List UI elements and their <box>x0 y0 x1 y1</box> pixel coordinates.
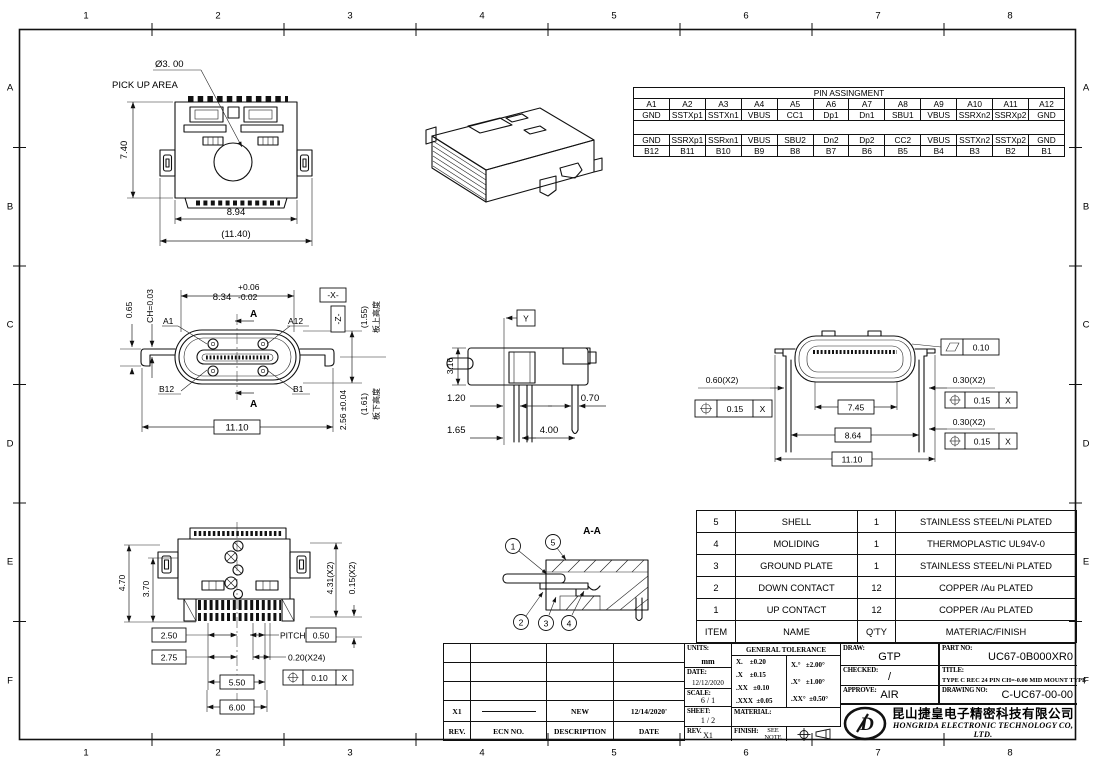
zone-col-8: 8 <box>1007 11 1012 22</box>
pos-tol-2: 0.15 <box>974 396 991 406</box>
datum-x-label: -X- <box>327 290 339 300</box>
balloon-3: 3 <box>544 619 549 629</box>
bom-item: 3 <box>697 555 736 577</box>
pos-datum-1: X <box>760 404 766 414</box>
draw-value: GTP <box>841 651 938 663</box>
zone-col-8b: 8 <box>1007 748 1012 759</box>
section-view: A-A 1 5 2 3 4 <box>503 526 648 631</box>
label-b12: B12 <box>159 384 174 394</box>
zone-col-1: 1 <box>83 11 88 22</box>
rear-view: 0.10 0.60(X2) 0.15 X 7.45 8.64 11.10 0.3… <box>695 331 1017 466</box>
pin-col: A9 <box>921 99 957 110</box>
bom-material: COPPER /Au PLATED <box>896 599 1077 621</box>
datum-z-label: -Z- <box>333 313 343 324</box>
section-mark-bottom: A <box>250 399 257 410</box>
date-label: DATE: <box>687 669 707 676</box>
finish-value: SEE NOTE <box>760 727 786 741</box>
zone-row-a: A <box>7 83 13 94</box>
dim-3-70: 3.70 <box>141 580 151 597</box>
dim-7-40: 7.40 <box>119 141 130 160</box>
bom-header-item: ITEM <box>697 621 736 643</box>
pin-col: A11 <box>993 99 1029 110</box>
pin-signal: GND <box>634 135 670 146</box>
rev-header-date: DATE <box>614 722 685 741</box>
section-mark-top: A <box>250 309 257 320</box>
dim-0-30x2-b: 0.30(X2) <box>953 417 986 427</box>
pin-col: B1 <box>1028 146 1064 157</box>
dim-1-20: 1.20 <box>447 393 466 404</box>
pin-signal: Dp1 <box>813 110 849 121</box>
dim-3-16: 3.16 <box>445 357 455 374</box>
rev-header-ecn: ECN NO. <box>471 722 547 741</box>
scale-cell: SCALE: 6 / 1 <box>685 689 732 707</box>
zone-col-6b: 6 <box>743 748 748 759</box>
sheet-value: 1 / 2 <box>685 716 731 725</box>
dim-8-34-tol-minus: -0.02 <box>238 292 258 302</box>
rev-date: 12/14/2020' <box>614 701 685 722</box>
projection-symbols <box>786 727 841 741</box>
bom-item: 5 <box>697 511 736 533</box>
zone-col-4: 4 <box>479 11 484 22</box>
zone-row-c2: C <box>1083 320 1090 331</box>
pin-signal: VBUS <box>741 135 777 146</box>
rev-description: NEW <box>547 701 614 722</box>
pin-col: A4 <box>741 99 777 110</box>
pin-signal: SSTXn1 <box>705 110 741 121</box>
pos-datum-2: X <box>1005 396 1011 406</box>
material-cell: MATERIAL: <box>732 707 841 727</box>
bom-material: STAINLESS STEEL/Ni PLATED <box>896 511 1077 533</box>
rev-value: X1 <box>444 701 471 722</box>
pin-signal: CC1 <box>777 110 813 121</box>
rev-header-desc: DESCRIPTION <box>547 722 614 741</box>
pin-signal: CC2 <box>885 135 921 146</box>
dim-4-70: 4.70 <box>117 574 127 591</box>
dim-4-31x2: 4.31(X2) <box>325 562 335 595</box>
bom-header-name: NAME <box>736 621 858 643</box>
title-block: UNITS: mm DATE: 12/12/2020 SCALE: 6 / 1 … <box>684 643 1076 740</box>
units-label: UNITS: <box>687 645 709 652</box>
bom-name: UP CONTACT <box>736 599 858 621</box>
dim-2-56: 2.56 ±0.04 <box>338 390 348 430</box>
pin-col: B4 <box>921 146 957 157</box>
pitch-value: 0.50 <box>313 631 330 641</box>
rev-ecn-line <box>471 701 547 722</box>
zone-col-3: 3 <box>347 11 352 22</box>
pin-col: A12 <box>1028 99 1064 110</box>
balloon-2: 2 <box>519 618 524 628</box>
dim-5-50: 5.50 <box>229 678 246 688</box>
pin-col: B11 <box>669 146 705 157</box>
pin-col: A5 <box>777 99 813 110</box>
dim-ch: CH=0.03 <box>145 289 155 323</box>
zone-row-f: F <box>7 676 13 687</box>
zone-col-5: 5 <box>611 11 616 22</box>
pin-signal: VBUS <box>741 110 777 121</box>
top-view: 7.40 8.94 (11.40) Ø3. 00 PICK UP AREA <box>112 59 312 246</box>
bom-name: SHELL <box>736 511 858 533</box>
pin-col: A10 <box>957 99 993 110</box>
date-cell: DATE: 12/12/2020 <box>685 668 732 689</box>
rev-empty <box>444 663 471 682</box>
pos-datum-bottom: X <box>342 673 348 683</box>
zone-row-e2: E <box>1083 557 1089 568</box>
bom-name: DOWN CONTACT <box>736 577 858 599</box>
pin-col: B9 <box>741 146 777 157</box>
dim-11-10-rear: 11.10 <box>842 455 863 465</box>
rev-cell: REV. X1 <box>685 727 732 741</box>
pin-signal: VBUS <box>921 110 957 121</box>
pin-signal: SSTXp1 <box>669 110 705 121</box>
pin-col: A3 <box>705 99 741 110</box>
part-no-cell: PART NO: UC67-0B000XR0 <box>939 644 1077 666</box>
zone-row-b2: B <box>1083 202 1089 213</box>
zone-col-7b: 7 <box>875 748 880 759</box>
pin-table-title: PIN ASSINGMENT <box>634 88 1065 99</box>
pin-signal: SSRXp2 <box>993 110 1029 121</box>
zone-col-7: 7 <box>875 11 880 22</box>
bom-header-qty: Q'TY <box>858 621 896 643</box>
pin-signal: SSRxn1 <box>705 135 741 146</box>
company-name-en: HONGRIDA ELECTRONIC TECHNOLOGY CO, LTD. <box>889 721 1077 739</box>
dim-8-34-tol-plus: +0.06 <box>238 282 260 292</box>
target-symbol-icon <box>797 728 811 741</box>
pin-signal: Dp2 <box>849 135 885 146</box>
sheet-cell: SHEET: 1 / 2 <box>685 707 732 727</box>
bom-material: STAINLESS STEEL/Ni PLATED <box>896 555 1077 577</box>
dim-1-61: (1.61) <box>359 393 369 415</box>
dim-1-55: (1.55) <box>359 306 369 328</box>
company-logo-icon: D <box>841 705 889 742</box>
pin-signal: GND <box>1028 110 1064 121</box>
tol-l2: .X ±0.15 <box>736 671 786 679</box>
finish-label: FINISH: <box>734 728 758 735</box>
dim-0-20x24: 0.20(X24) <box>288 653 325 663</box>
revision-table: X1 NEW 12/14/2020' REV. ECN NO. DESCRIPT… <box>443 643 685 741</box>
bom-qty: 1 <box>858 511 896 533</box>
pos-tol-bottom: 0.10 <box>311 673 328 683</box>
pos-datum-3: X <box>1005 437 1011 447</box>
pin-signal: GND <box>1028 135 1064 146</box>
pin-signal: GND <box>634 110 670 121</box>
bom-qty: 12 <box>858 577 896 599</box>
zone-row-d: D <box>7 439 14 450</box>
drawing-sheet: 7.40 8.94 (11.40) Ø3. 00 PICK UP AREA <box>0 0 1096 767</box>
bom-item: 4 <box>697 533 736 555</box>
tolerance-angular: X.° ±2.00° .X° ±1.00° .XX° ±0.50° <box>786 656 841 707</box>
datum-y-label: Y <box>523 314 529 324</box>
company-name-cn: 昆山捷皇电子精密科技有限公司 <box>889 707 1077 721</box>
draw-cell: DRAW: GTP <box>841 644 939 666</box>
pin-col: B8 <box>777 146 813 157</box>
dim-8-34: 8.34 <box>213 292 232 303</box>
bom-table: 5SHELL1STAINLESS STEEL/Ni PLATED 4MOLIDI… <box>696 510 1077 643</box>
pin-assignment-table: PIN ASSINGMENT A1A2A3A4A5A6A7A8A9A10A11A… <box>633 87 1065 157</box>
zone-col-1b: 1 <box>83 748 88 759</box>
dim-11-40: (11.40) <box>221 229 250 240</box>
pin-signal: SSRXp1 <box>669 135 705 146</box>
dim-1-65: 1.65 <box>447 425 466 436</box>
flatness-value: 0.10 <box>973 343 990 353</box>
zone-row-b: B <box>7 202 13 213</box>
pin-col: A7 <box>849 99 885 110</box>
dim-0-15x2: 0.15(X2) <box>347 562 357 595</box>
finish-cell: FINISH: SEE NOTE <box>732 727 786 741</box>
zone-col-6: 6 <box>743 11 748 22</box>
pin-col: B7 <box>813 146 849 157</box>
pin-signal: VBUS <box>921 135 957 146</box>
dim-6-00: 6.00 <box>229 703 246 713</box>
bom-name: MOLIDING <box>736 533 858 555</box>
side-view: Y 3.16 1.20 0.70 1.65 4.00 <box>445 310 606 445</box>
pin-signal: SBU2 <box>777 135 813 146</box>
zone-col-2: 2 <box>215 11 220 22</box>
rev-empty <box>444 644 471 663</box>
isometric-view <box>426 108 602 202</box>
title-cell: TITLE: TYPE C REC 24 PIN CH=-0.00 MID MO… <box>939 666 1077 686</box>
balloon-1: 1 <box>511 542 516 552</box>
drawing-no-cell: DRAWING NO: C-UC67-00-00 <box>939 686 1077 704</box>
pin-signal: SBU1 <box>885 110 921 121</box>
zone-row-e: E <box>7 557 13 568</box>
company-names: 昆山捷皇电子精密科技有限公司 HONGRIDA ELECTRONIC TECHN… <box>889 707 1077 739</box>
zone-row-d2: D <box>1083 439 1090 450</box>
part-no-value: UC67-0B000XR0 <box>940 651 1073 663</box>
checked-cell: CHECKED: / <box>841 666 939 686</box>
sheet-label: SHEET: <box>687 708 710 715</box>
pin-col: B12 <box>634 146 670 157</box>
tolerance-linear: X. ±0.20 .X ±0.15 .XX ±0.10 .XXX ±0.05 <box>732 656 786 707</box>
tol-a3: .XX° ±0.50° <box>791 695 840 703</box>
tol-l4: .XXX ±0.05 <box>736 697 786 705</box>
dim-0-70: 0.70 <box>581 393 600 404</box>
units-value: mm <box>685 657 731 666</box>
pin-col: A6 <box>813 99 849 110</box>
rev-header-rev: REV. <box>444 722 471 741</box>
pin-col: B5 <box>885 146 921 157</box>
zone-col-5b: 5 <box>611 748 616 759</box>
dim-2-75: 2.75 <box>161 653 178 663</box>
tol-l1: X. ±0.20 <box>736 658 786 666</box>
note-above-board: 板上高度 <box>371 301 381 333</box>
zone-row-c: C <box>7 320 14 331</box>
pin-col: A8 <box>885 99 921 110</box>
bottom-view: 4.70 3.70 4.31(X2) 0.15(X2) 2.50 PITCH 0… <box>117 522 362 714</box>
pin-col: A2 <box>669 99 705 110</box>
pickup-dia-label: Ø3. 00 <box>155 59 184 70</box>
bom-material: THERMOPLASTIC UL94V-0 <box>896 533 1077 555</box>
pin-signal: Dn1 <box>849 110 885 121</box>
rev-empty <box>444 682 471 701</box>
bom-header-material: MATERIAC/FINISH <box>896 621 1077 643</box>
scale-value: 6 / 1 <box>685 696 731 705</box>
tolerance-title: GENERAL TOLERANCE <box>732 644 841 656</box>
label-a1: A1 <box>163 316 174 326</box>
title-value: TYPE C REC 24 PIN CH=-0.00 MID MOUNT TYP… <box>942 677 1086 684</box>
label-a12: A12 <box>288 316 303 326</box>
rev-value2: X1 <box>685 731 731 740</box>
tol-a2: .X° ±1.00° <box>791 678 840 686</box>
bom-qty: 1 <box>858 555 896 577</box>
company-block: D 昆山捷皇电子精密科技有限公司 HONGRIDA ELECTRONIC TEC… <box>841 704 1077 741</box>
pin-table-gap <box>634 121 1065 135</box>
pos-tol-1: 0.15 <box>727 404 744 414</box>
approve-value: AIR <box>841 689 938 701</box>
pin-col: B3 <box>957 146 993 157</box>
pin-signal: SSRXn2 <box>957 110 993 121</box>
date-value: 12/12/2020 <box>685 679 731 687</box>
dim-0-65: 0.65 <box>124 301 134 318</box>
dim-7-45: 7.45 <box>848 403 865 413</box>
title-label: TITLE: <box>942 667 964 674</box>
pick-up-area-circle <box>214 143 252 181</box>
dim-2-50: 2.50 <box>161 631 178 641</box>
front-view: 0.65 CH=0.03 A1 A12 B12 B1 A A 8.34 +0.0… <box>120 282 386 434</box>
material-label: MATERIAL: <box>734 709 771 716</box>
bom-item: 1 <box>697 599 736 621</box>
bom-qty: 1 <box>858 533 896 555</box>
dim-11-10: 11.10 <box>225 423 248 434</box>
label-b1: B1 <box>293 384 304 394</box>
tol-l3: .XX ±0.10 <box>736 684 786 692</box>
pickup-area-label: PICK UP AREA <box>112 80 178 91</box>
dim-0-30x2-a: 0.30(X2) <box>953 375 986 385</box>
approve-cell: APPROVE: AIR <box>841 686 939 704</box>
dim-8-94: 8.94 <box>227 207 246 218</box>
cone-symbol-icon <box>815 728 832 740</box>
zone-row-a2: A <box>1083 83 1089 94</box>
section-title: A-A <box>583 526 601 537</box>
pos-tol-3: 0.15 <box>974 437 991 447</box>
zone-col-3b: 3 <box>347 748 352 759</box>
bom-name: GROUND PLATE <box>736 555 858 577</box>
bom-item: 2 <box>697 577 736 599</box>
zone-col-4b: 4 <box>479 748 484 759</box>
balloon-4: 4 <box>567 619 572 629</box>
drawing-no-value: C-UC67-00-00 <box>940 689 1073 701</box>
dim-4-00: 4.00 <box>540 425 559 436</box>
units-cell: UNITS: mm <box>685 644 732 668</box>
note-below-board: 板下高度 <box>371 388 381 420</box>
tol-a1: X.° ±2.00° <box>791 661 840 669</box>
bom-qty: 12 <box>858 599 896 621</box>
pitch-label: PITCH <box>280 631 306 641</box>
balloon-5: 5 <box>551 538 556 548</box>
zone-col-2b: 2 <box>215 748 220 759</box>
pin-col: B6 <box>849 146 885 157</box>
dim-0-60x2: 0.60(X2) <box>706 375 739 385</box>
bom-material: COPPER /Au PLATED <box>896 577 1077 599</box>
pin-col: B2 <box>993 146 1029 157</box>
checked-value: / <box>841 671 938 683</box>
dim-8-64: 8.64 <box>845 431 862 441</box>
pin-signal: Dn2 <box>813 135 849 146</box>
pin-col: A1 <box>634 99 670 110</box>
pin-signal: SSTXp2 <box>993 135 1029 146</box>
pin-signal: SSTXn2 <box>957 135 993 146</box>
pin-col: B10 <box>705 146 741 157</box>
